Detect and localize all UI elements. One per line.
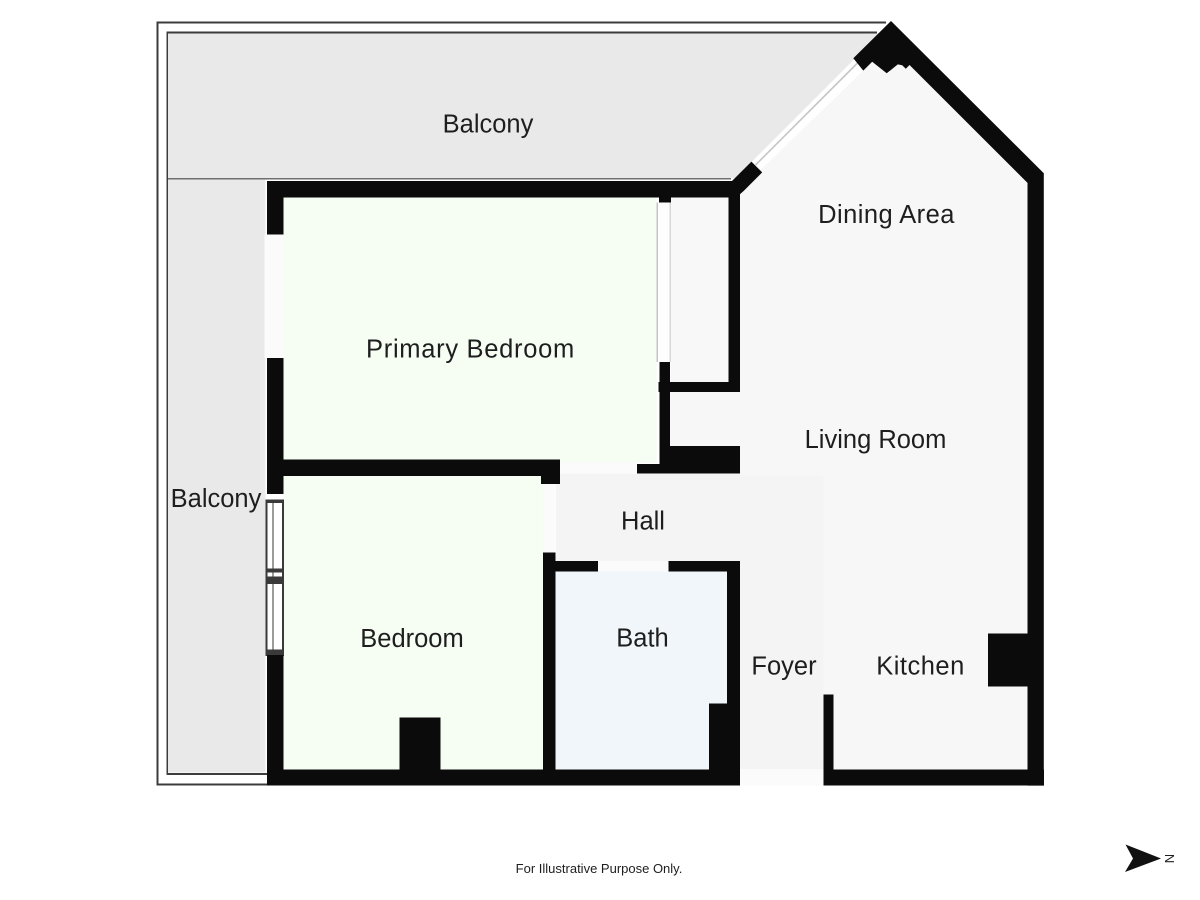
svg-text:Balcony: Balcony [443,111,534,139]
svg-text:Living Room: Living Room [805,426,947,454]
svg-text:For Illustrative Purpose Only.: For Illustrative Purpose Only. [516,861,683,876]
svg-text:Hall: Hall [621,508,665,536]
svg-text:Bath: Bath [616,625,668,653]
svg-text:Primary Bedroom: Primary Bedroom [366,336,575,364]
svg-text:Balcony: Balcony [171,485,262,513]
svg-text:Dining Area: Dining Area [818,201,955,229]
svg-text:N: N [1162,854,1177,863]
svg-text:Bedroom: Bedroom [360,625,463,653]
svg-text:Foyer: Foyer [751,653,817,681]
svg-text:Kitchen: Kitchen [876,653,965,681]
